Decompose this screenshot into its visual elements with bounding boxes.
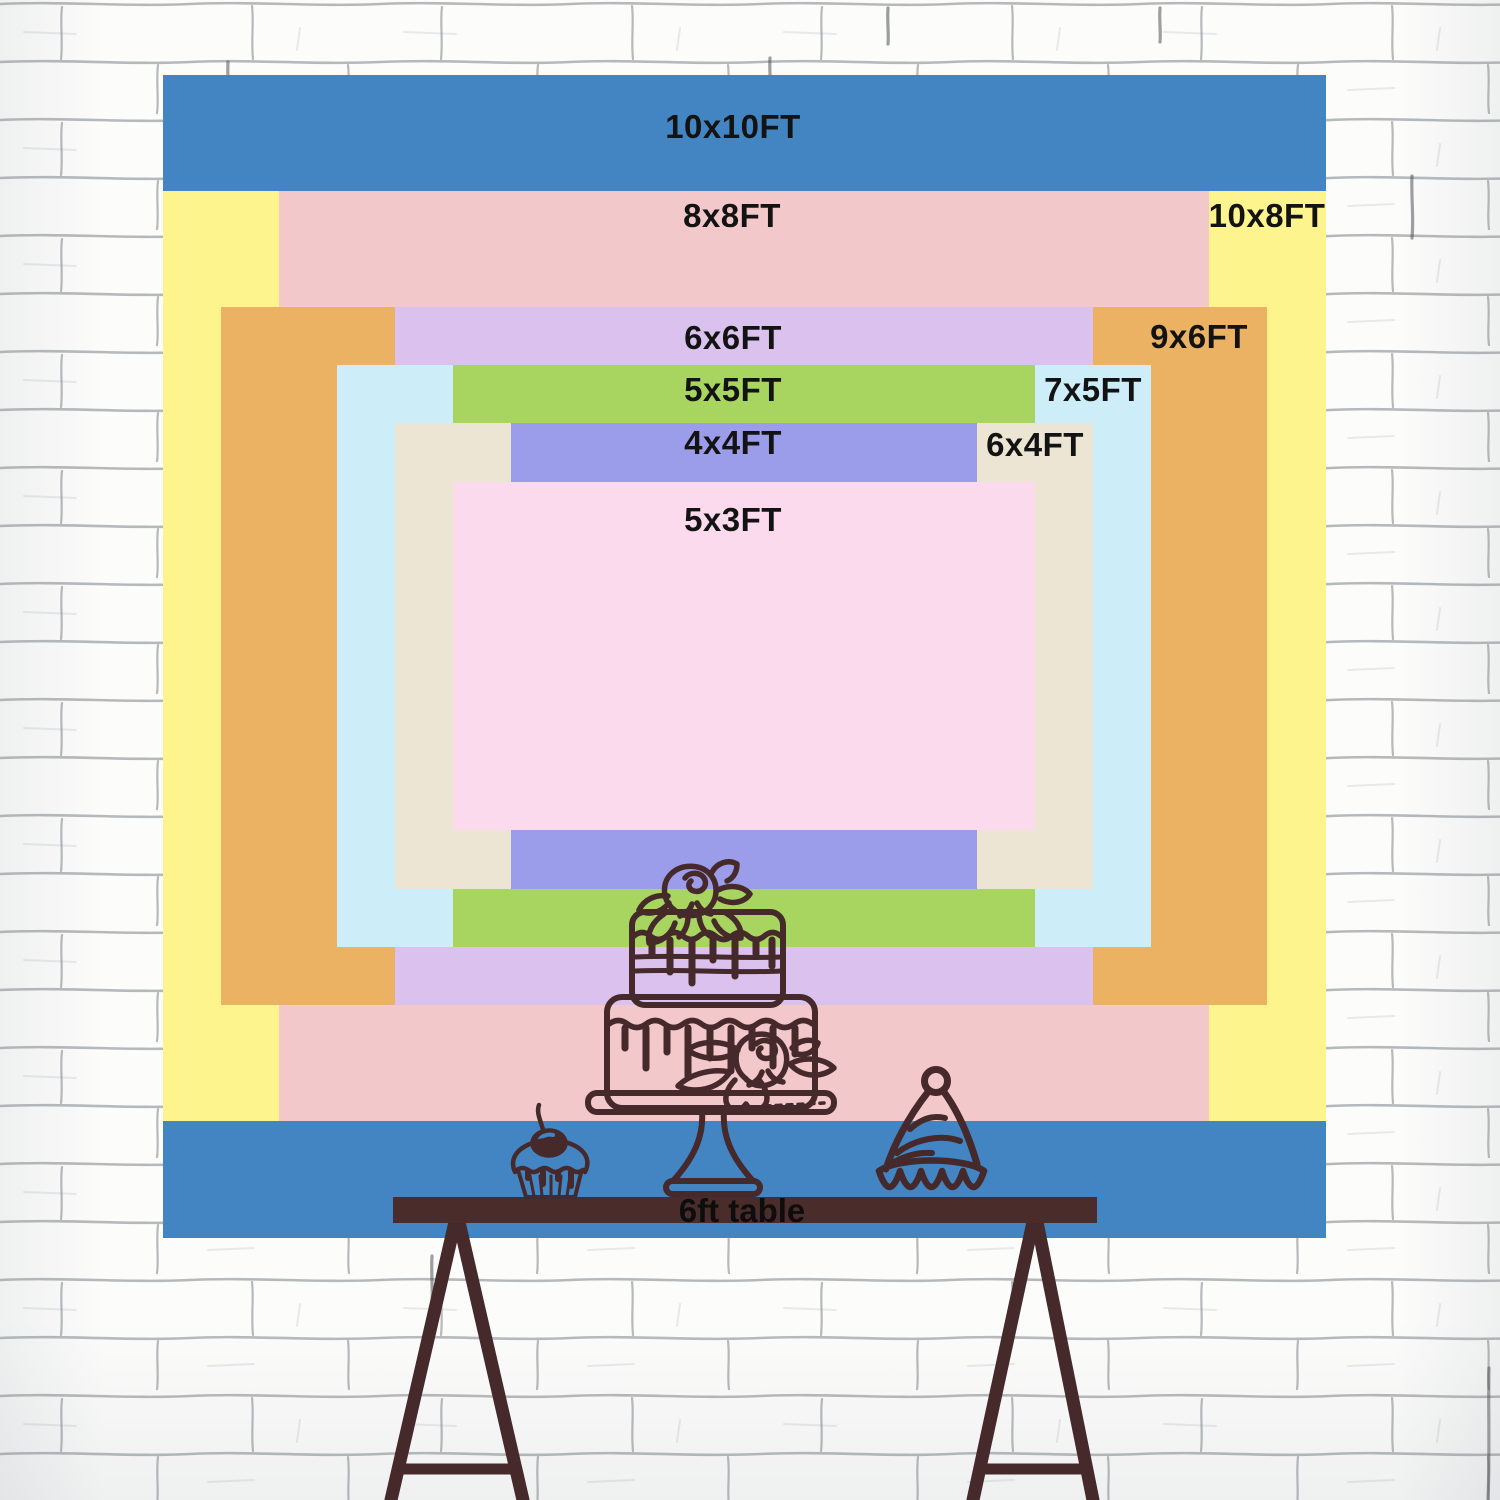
size-label-4x4ft: 4x4FT — [684, 424, 782, 462]
size-label-7x5ft: 7x5FT — [1044, 371, 1142, 409]
size-label-9x6ft: 9x6FT — [1150, 318, 1248, 356]
size-label-8x8ft: 8x8FT — [683, 197, 781, 235]
size-label-6x6ft: 6x6FT — [684, 319, 782, 357]
size-label-5x5ft: 5x5FT — [684, 371, 782, 409]
backdrop-size-chart: 10x10FT10x8FT8x8FT9x6FT6x6FT7x5FT5x5FT6x… — [0, 0, 1500, 1500]
backdrop-size-guide-scene: 10x10FT10x8FT8x8FT9x6FT6x6FT7x5FT5x5FT6x… — [0, 0, 1500, 1500]
table-length-label: 6ft table — [679, 1192, 806, 1230]
size-label-6x4ft: 6x4FT — [986, 426, 1084, 464]
size-label-5x3ft: 5x3FT — [684, 501, 782, 539]
size-label-10x8ft: 10x8FT — [1209, 197, 1326, 235]
size-label-10x10ft: 10x10FT — [665, 108, 801, 146]
